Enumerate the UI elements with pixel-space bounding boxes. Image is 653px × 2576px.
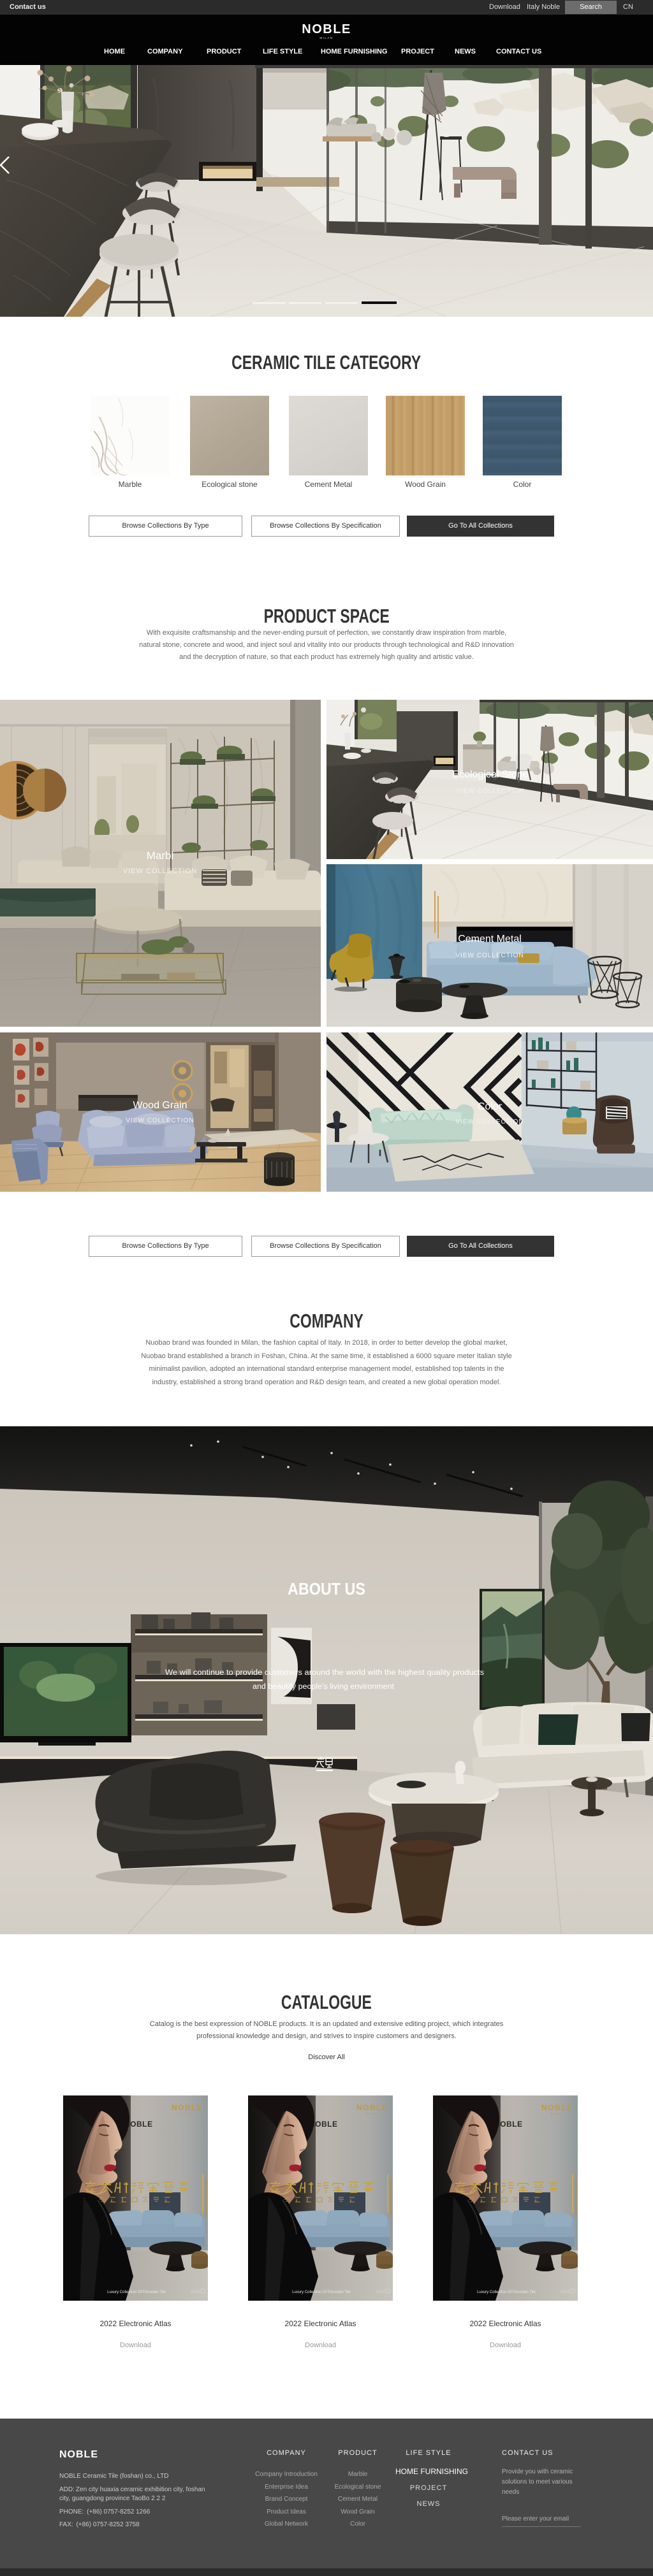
svg-text:2022: 2022: [376, 2290, 385, 2294]
svg-text:MILAN: MILAN: [180, 2113, 191, 2115]
svg-text:Marbl: Marbl: [147, 850, 174, 862]
svg-text:VIEW COLLECTION: VIEW COLLECTION: [455, 1118, 524, 1125]
svg-text:VIEW COLLECTION: VIEW COLLECTION: [456, 788, 524, 795]
svg-text:VIEW COLLECTION: VIEW COLLECTION: [455, 952, 524, 959]
svg-text:2022: 2022: [191, 2290, 200, 2294]
svg-text:Cement Metal: Cement Metal: [458, 934, 522, 944]
svg-text:Luxury Collection Of Porcelain: Luxury Collection Of Porcelain Tile: [292, 2290, 351, 2294]
svg-text:NOBLE: NOBLE: [172, 2103, 203, 2112]
svg-text:ABOUT US: ABOUT US: [288, 1579, 365, 1598]
svg-text:MILAN: MILAN: [365, 2113, 376, 2115]
svg-text:MILAN: MILAN: [550, 2113, 561, 2115]
svg-text:NOBLE: NOBLE: [541, 2103, 573, 2112]
svg-text:Color: Color: [478, 1101, 503, 1112]
svg-text:VIEW COLLECTION: VIEW COLLECTION: [126, 1117, 194, 1124]
svg-text:Ecological Stone: Ecological Stone: [452, 769, 528, 780]
svg-text:Wood Grain: Wood Grain: [133, 1100, 187, 1111]
svg-text:2022: 2022: [561, 2290, 570, 2294]
svg-text:NOBLE: NOBLE: [356, 2103, 388, 2112]
svg-text:We will continue to provide cu: We will continue to provide customers ar…: [165, 1669, 484, 1677]
svg-text:Luxury Collection Of Porcelain: Luxury Collection Of Porcelain Tile: [107, 2290, 166, 2294]
svg-text:VIEW COLLECTION: VIEW COLLECTION: [123, 867, 197, 875]
svg-text:Luxury Collection Of Porcelain: Luxury Collection Of Porcelain Tile: [477, 2290, 536, 2294]
svg-text:and beautify people's living e: and beautify people's living environment: [253, 1683, 395, 1691]
